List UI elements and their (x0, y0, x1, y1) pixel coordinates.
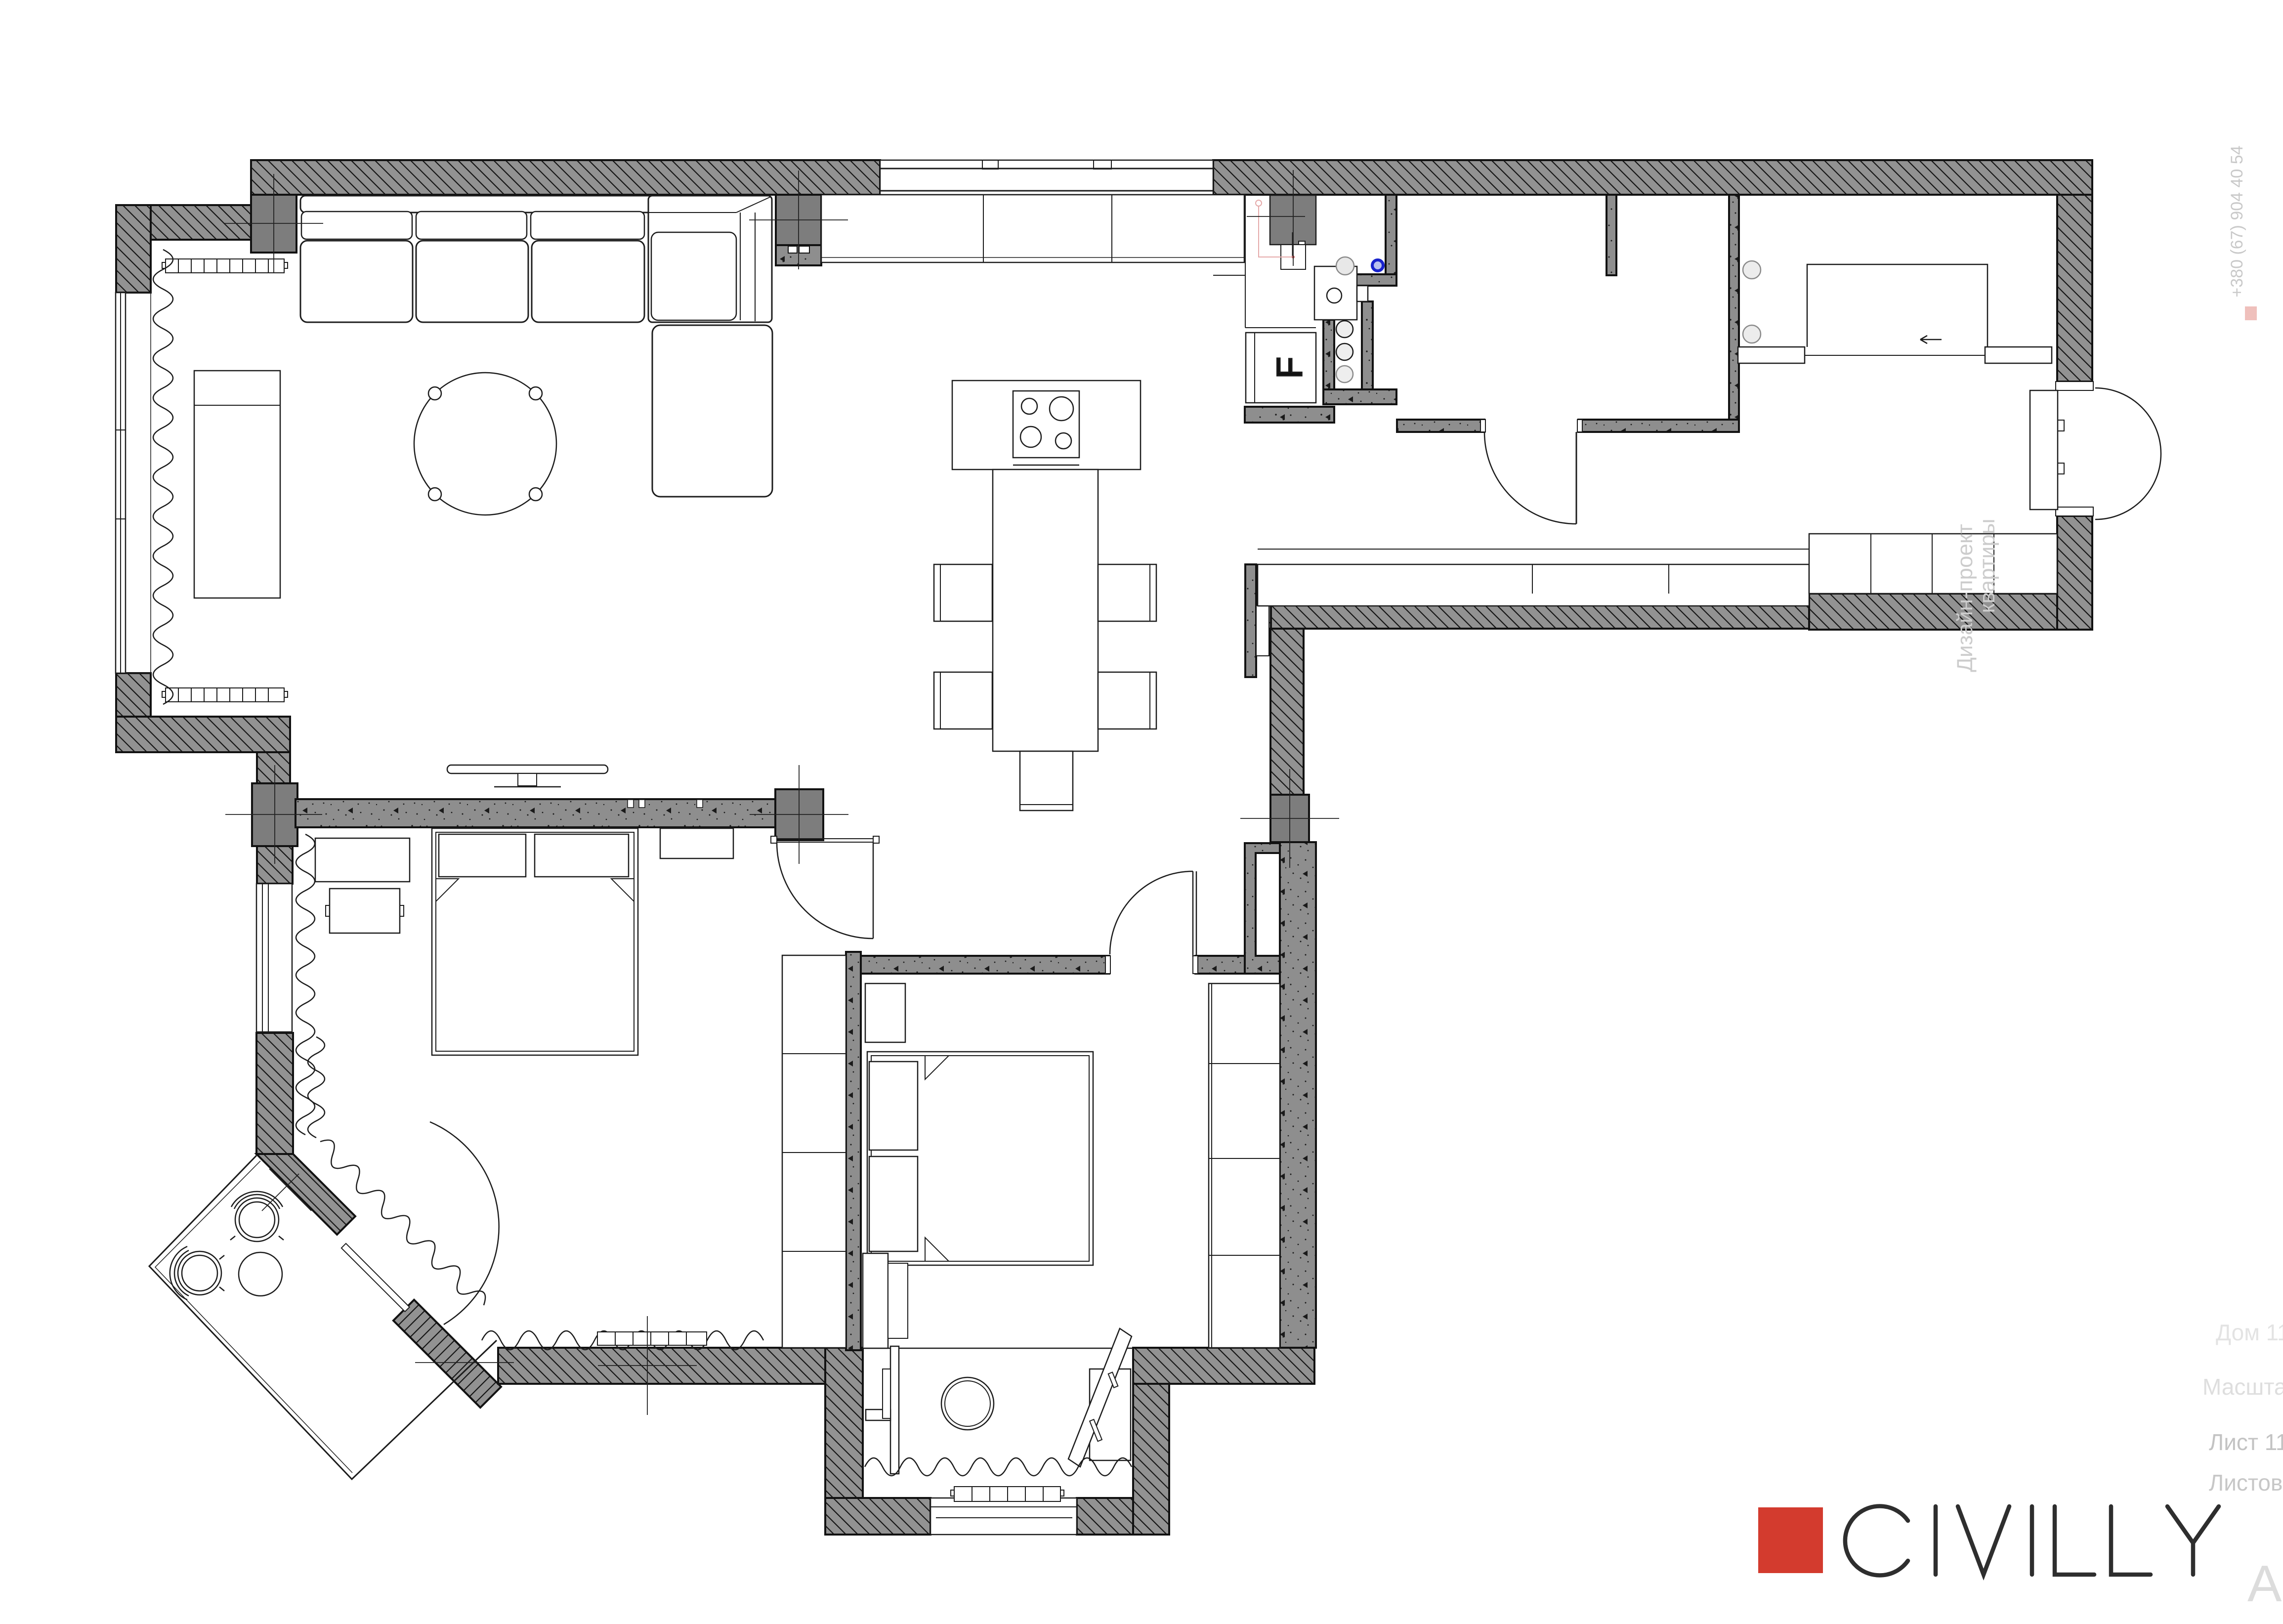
svg-text:Дизайн-проект: Дизайн-проект (1953, 524, 1977, 672)
svg-text:Лист 11: Лист 11 (2209, 1429, 2283, 1455)
svg-text:+380 (67) 904 40 54: +380 (67) 904 40 54 (2228, 145, 2246, 297)
svg-text:F: F (1270, 357, 1310, 379)
svg-text:квартиры: квартиры (1975, 519, 1999, 613)
svg-text:Листов: Листов (2209, 1470, 2283, 1496)
svg-text:Масштаб: Масштаб (2202, 1374, 2283, 1400)
svg-text:А: А (2247, 1555, 2282, 1613)
svg-text:Дом 11: Дом 11 (2216, 1320, 2283, 1345)
